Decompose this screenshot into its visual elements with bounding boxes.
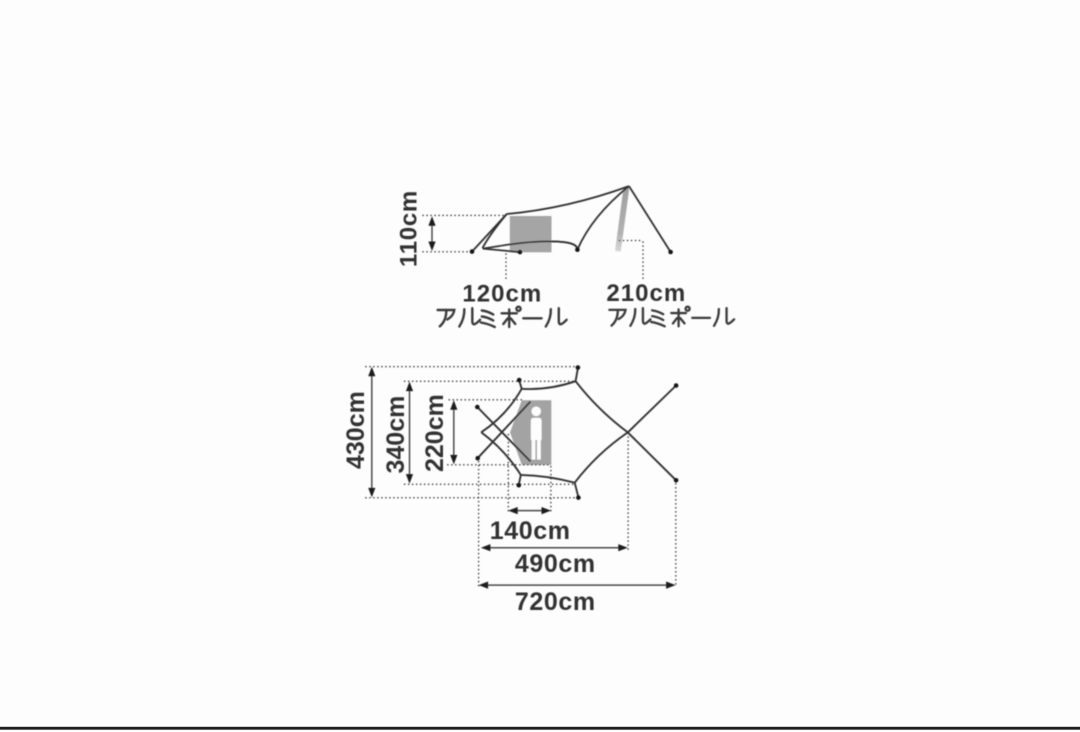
- svg-text:490cm: 490cm: [515, 550, 596, 578]
- svg-text:720cm: 720cm: [515, 588, 596, 616]
- svg-text:110cm: 110cm: [396, 190, 423, 267]
- svg-text:140cm: 140cm: [490, 517, 571, 545]
- svg-text:210cm: 210cm: [606, 280, 686, 307]
- svg-text:220cm: 220cm: [421, 394, 449, 472]
- svg-text:340cm: 340cm: [382, 396, 410, 474]
- svg-text:120cm: 120cm: [462, 281, 542, 308]
- svg-text:430cm: 430cm: [342, 391, 370, 469]
